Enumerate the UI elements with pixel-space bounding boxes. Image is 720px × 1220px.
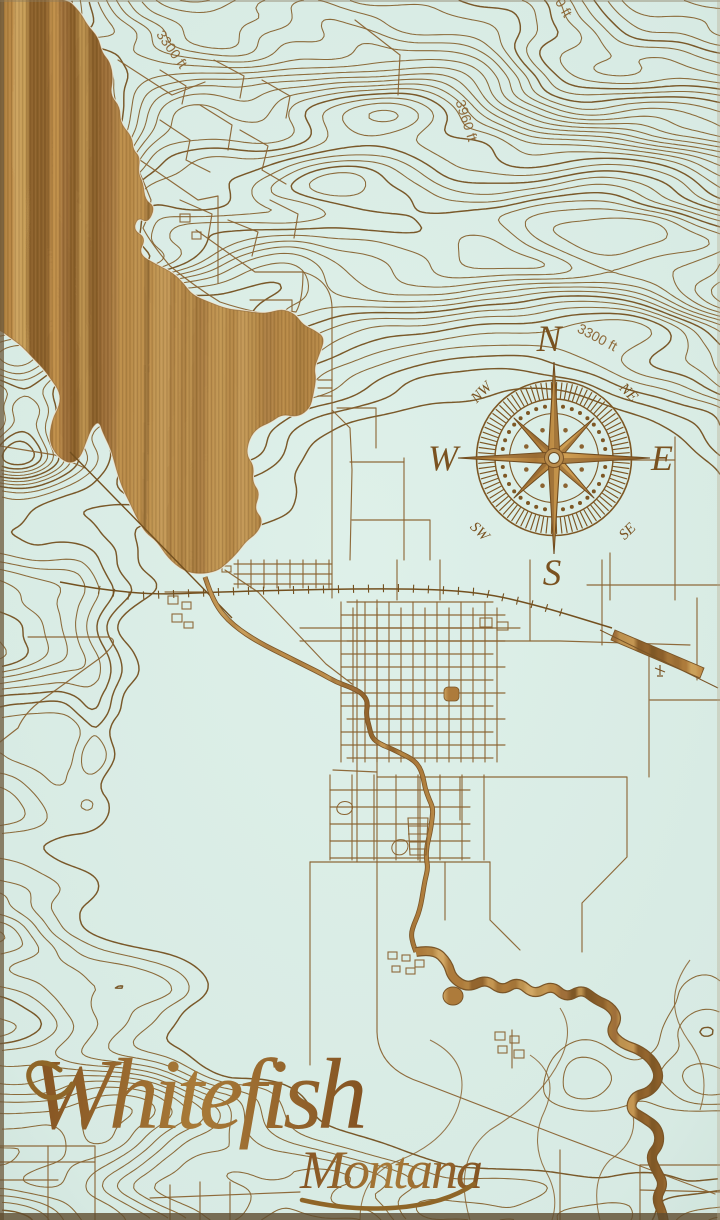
svg-text:W: W: [428, 438, 461, 478]
svg-text:S: S: [543, 553, 562, 594]
svg-text:E: E: [650, 438, 673, 478]
svg-text:N: N: [536, 319, 564, 360]
svg-text:Montana: Montana: [299, 1140, 481, 1200]
svg-text:Whitefish: Whitefish: [30, 1038, 364, 1150]
